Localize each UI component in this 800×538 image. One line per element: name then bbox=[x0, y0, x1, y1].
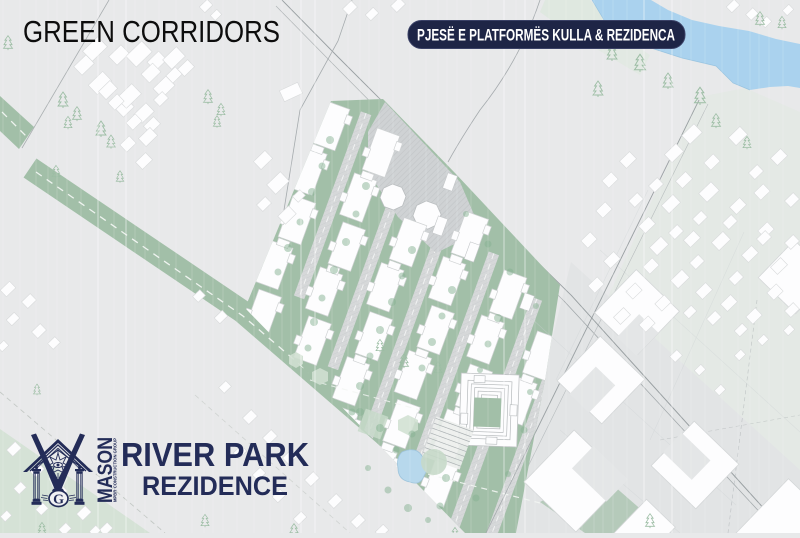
svg-text:REZIDENCE: REZIDENCE bbox=[142, 471, 288, 501]
svg-text:RIVER PARK: RIVER PARK bbox=[121, 437, 309, 474]
svg-text:GREEN CORRIDORS: GREEN CORRIDORS bbox=[23, 15, 280, 49]
svg-text:MPBR·CONSTRUCTION GROUP: MPBR·CONSTRUCTION GROUP bbox=[113, 438, 118, 502]
svg-text:PJESË E PLATFORMËS KULLA & REZ: PJESË E PLATFORMËS KULLA & REZIDENCA bbox=[417, 27, 675, 45]
svg-text:G: G bbox=[53, 493, 64, 508]
